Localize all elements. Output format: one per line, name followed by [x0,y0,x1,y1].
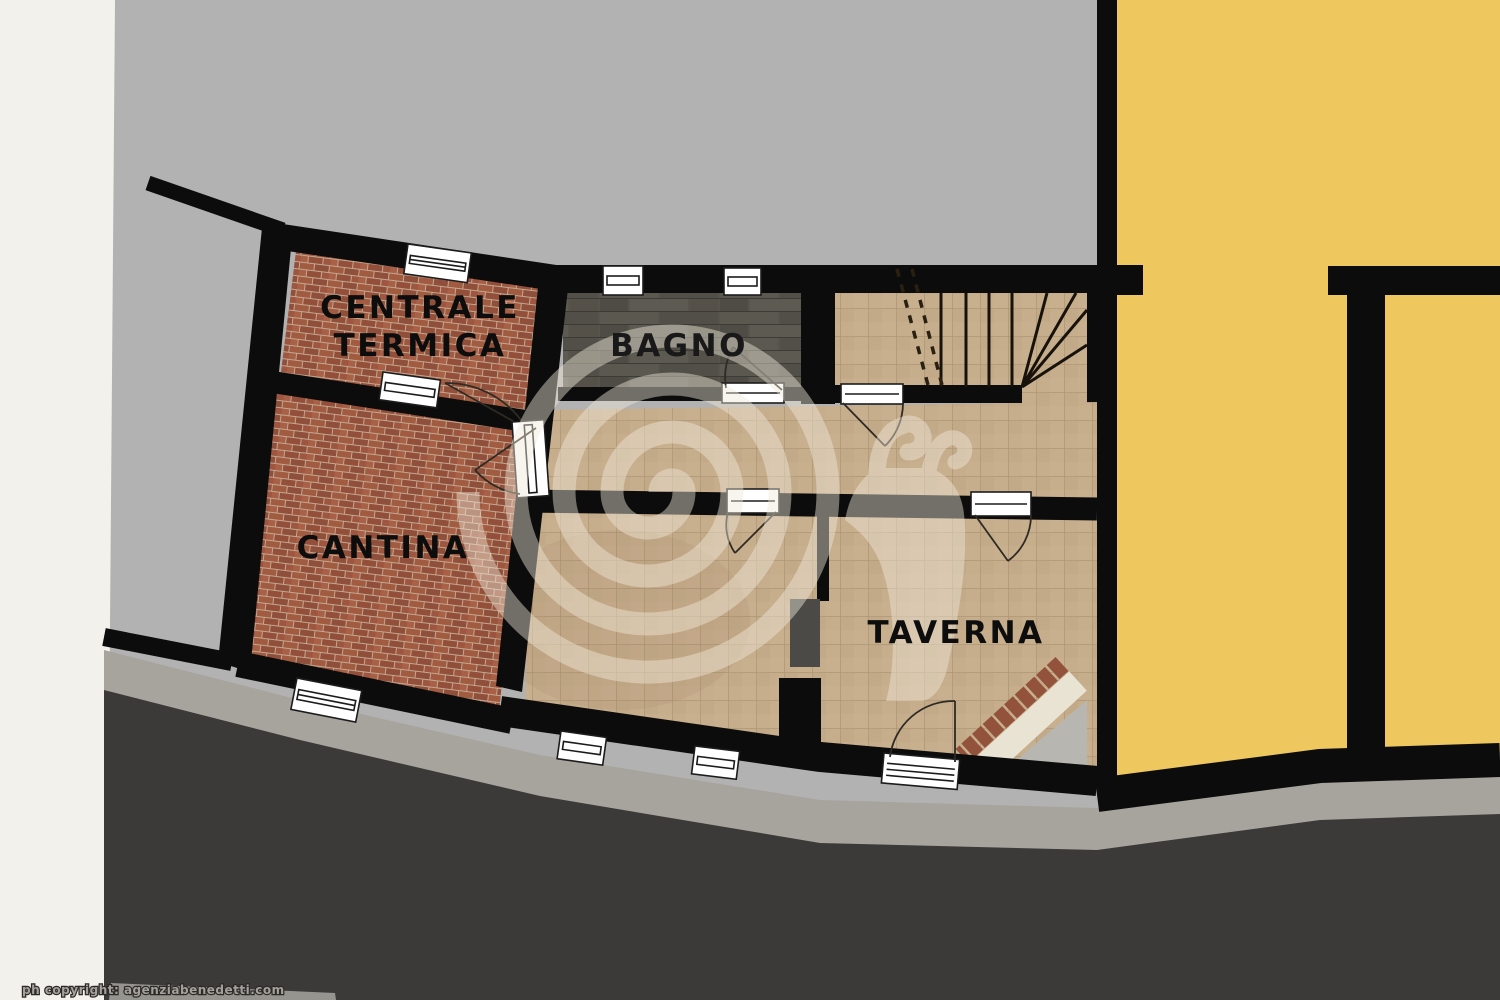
floorplan-canvas: CENTRALE TERMICA CANTINA BAGNO TAVERNA p… [0,0,1500,1000]
label-taverna: TAVERNA [867,615,1044,651]
wall-bagno-stairs [801,265,835,404]
label-bagno: BAGNO [610,328,748,364]
label-centrale-termica-line1: CENTRALE [320,290,520,326]
yellow-room-floor [1115,0,1500,790]
window-bagno-2-icon [724,268,761,295]
label-cantina: CANTINA [297,530,470,566]
wall-stub-yellow [1115,265,1143,295]
building-right [1085,0,1500,795]
paper-margin-left [0,0,115,1000]
window-bagno-1-icon [603,266,643,295]
floorplan-svg: CENTRALE TERMICA CANTINA BAGNO TAVERNA p… [0,0,1500,1000]
wall-right-main [1097,0,1117,795]
window-middle-2-icon [692,746,740,779]
label-centrale-termica-line2: TERMICA [334,328,507,364]
copyright-text: ph copyright: agenziabenedetti.com [22,983,285,997]
window-middle-1-icon [557,731,606,765]
wall-yellow-vertical [1347,266,1385,758]
